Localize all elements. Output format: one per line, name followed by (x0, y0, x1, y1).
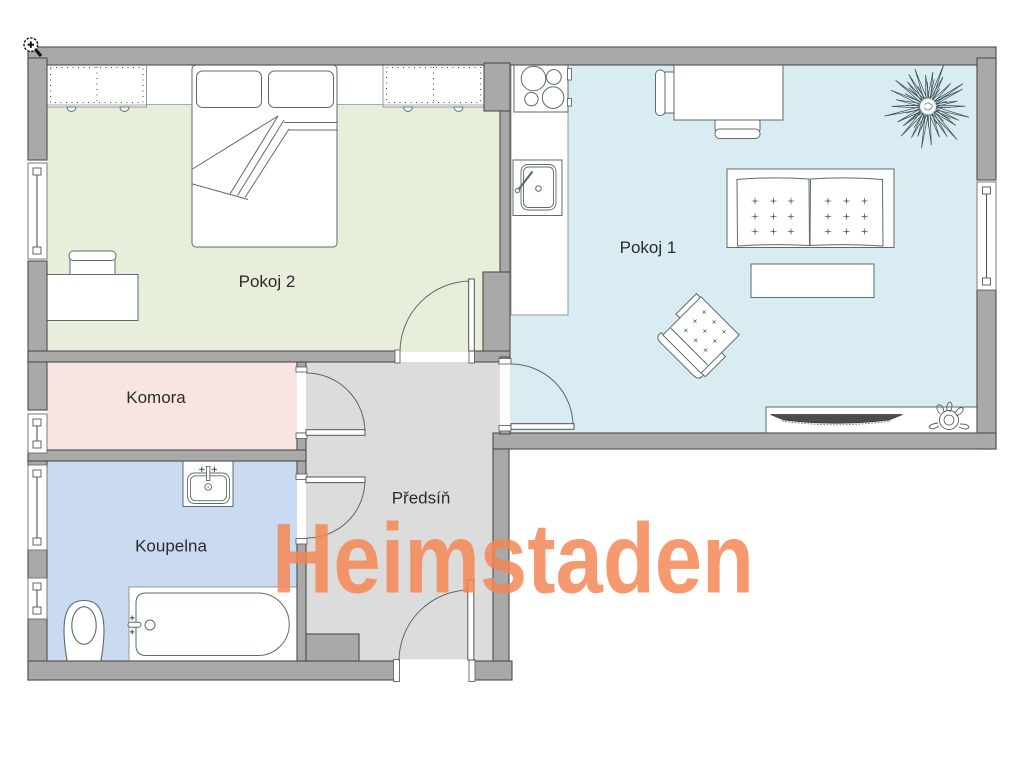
svg-text:Koupelna: Koupelna (135, 537, 207, 556)
svg-text:Pokoj 1: Pokoj 1 (620, 238, 677, 257)
svg-text:Pokoj 2: Pokoj 2 (239, 272, 296, 291)
svg-text:Komora: Komora (126, 388, 186, 407)
svg-text:Heimstaden: Heimstaden (272, 503, 754, 614)
